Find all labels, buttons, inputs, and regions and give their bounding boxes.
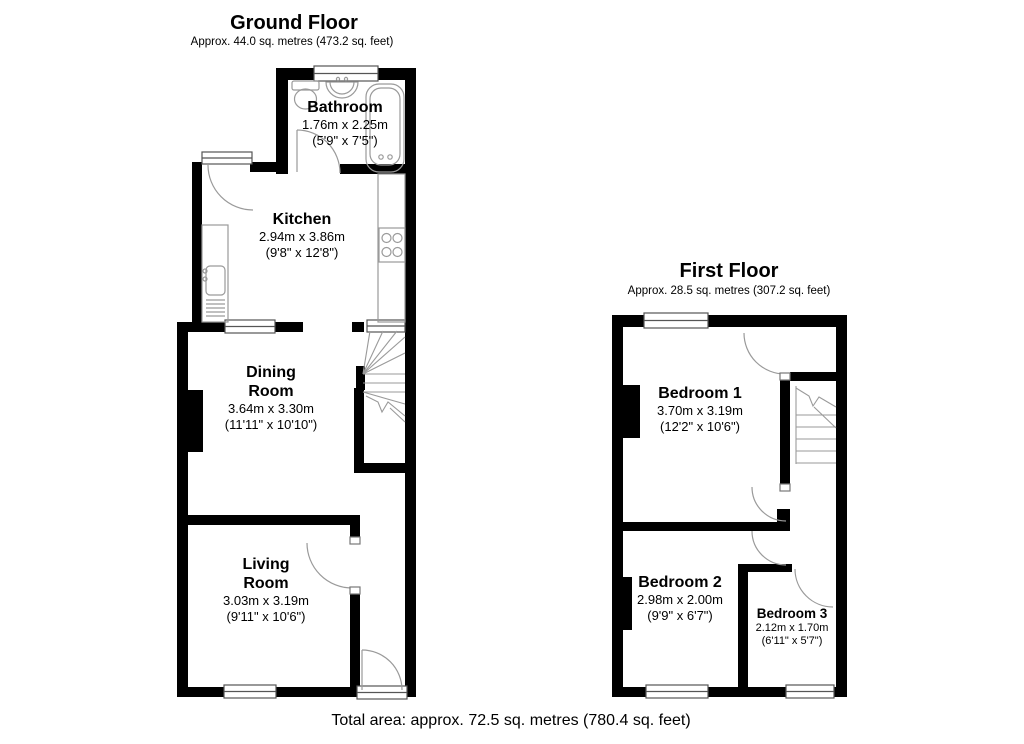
bedroom1-door <box>744 333 785 374</box>
room-label-bedroom-3: Bedroom 3 2.12m x 1.70m (6'11" x 5'7") <box>756 606 829 648</box>
first-floor-subtitle: Approx. 28.5 sq. metres (307.2 sq. feet) <box>628 285 831 297</box>
first-floor-title: First Floor <box>680 260 779 283</box>
room-dim-imperial: (6'11" x 5'7") <box>756 635 829 648</box>
room-dim-imperial: (9'8" x 12'8") <box>259 245 345 261</box>
room-dim-imperial: (11'11" x 10'10") <box>225 417 318 433</box>
room-name: Kitchen <box>259 210 345 229</box>
room-name: Dining Room <box>225 363 317 401</box>
bedroom1-window <box>644 313 708 328</box>
hob-icon <box>379 228 405 262</box>
ground-floor-title: Ground Floor <box>230 12 358 35</box>
room-dim-metric: 3.03m x 3.19m <box>220 593 312 609</box>
room-name: Living Room <box>220 555 312 593</box>
ground-floor-subtitle: Approx. 44.0 sq. metres (473.2 sq. feet) <box>191 36 394 48</box>
door-jamb <box>350 587 360 594</box>
door-jamb <box>780 373 790 380</box>
room-name: Bedroom 1 <box>657 384 743 403</box>
room-label-bedroom-2: Bedroom 2 2.98m x 2.00m (9'9" x 6'7") <box>637 573 723 624</box>
door-jamb <box>350 537 360 544</box>
room-dim-imperial: (9'9" x 6'7") <box>637 608 723 624</box>
first-floor-stairs <box>796 386 836 464</box>
back-door-sill <box>202 152 252 164</box>
bedroom2-door <box>752 531 786 565</box>
living-room-window <box>224 685 276 698</box>
door-jamb <box>780 484 790 491</box>
front-door-sill <box>357 686 407 699</box>
room-dim-metric: 2.94m x 3.86m <box>259 229 345 245</box>
room-label-kitchen: Kitchen 2.94m x 3.86m (9'8" x 12'8") <box>259 210 345 261</box>
room-dim-metric: 3.64m x 3.30m <box>225 401 318 417</box>
back-door <box>208 165 253 210</box>
room-name: Bathroom <box>302 98 388 117</box>
bedroom2-window <box>646 685 708 698</box>
room-name: Bedroom 2 <box>637 573 723 592</box>
room-label-living-room: Living Room 3.03m x 3.19m (9'11" x 10'6"… <box>220 555 312 625</box>
floorplan-page: Ground Floor Approx. 44.0 sq. metres (47… <box>0 0 1024 744</box>
room-label-dining-room: Dining Room 3.64m x 3.30m (11'11" x 10'1… <box>225 363 318 433</box>
kitchen-sink-icon <box>203 266 225 316</box>
room-label-bathroom: Bathroom 1.76m x 2.25m (5'9" x 7'5") <box>302 98 388 149</box>
bedroom3-door <box>795 569 833 607</box>
room-dim-imperial: (5'9" x 7'5") <box>302 133 388 149</box>
living-room-door <box>307 543 352 588</box>
front-door <box>362 650 402 690</box>
room-dim-imperial: (12'2" x 10'6") <box>657 419 743 435</box>
total-area-text: Total area: approx. 72.5 sq. metres (780… <box>331 712 690 730</box>
bathroom-window <box>314 66 378 81</box>
room-dim-metric: 3.70m x 3.19m <box>657 403 743 419</box>
floorplan-drawing <box>0 0 1024 744</box>
room-dim-metric: 2.98m x 2.00m <box>637 592 723 608</box>
room-dim-metric: 2.12m x 1.70m <box>756 622 829 635</box>
room-dim-imperial: (9'11" x 10'6") <box>220 609 312 625</box>
ground-floor-stairs <box>363 331 405 422</box>
room-name: Bedroom 3 <box>756 606 829 622</box>
bedroom3-window <box>786 685 834 698</box>
kitchen-counter-right <box>378 174 405 322</box>
room-dim-metric: 1.76m x 2.25m <box>302 117 388 133</box>
room-label-bedroom-1: Bedroom 1 3.70m x 3.19m (12'2" x 10'6") <box>657 384 743 435</box>
kitchen-dining-window <box>225 320 275 333</box>
